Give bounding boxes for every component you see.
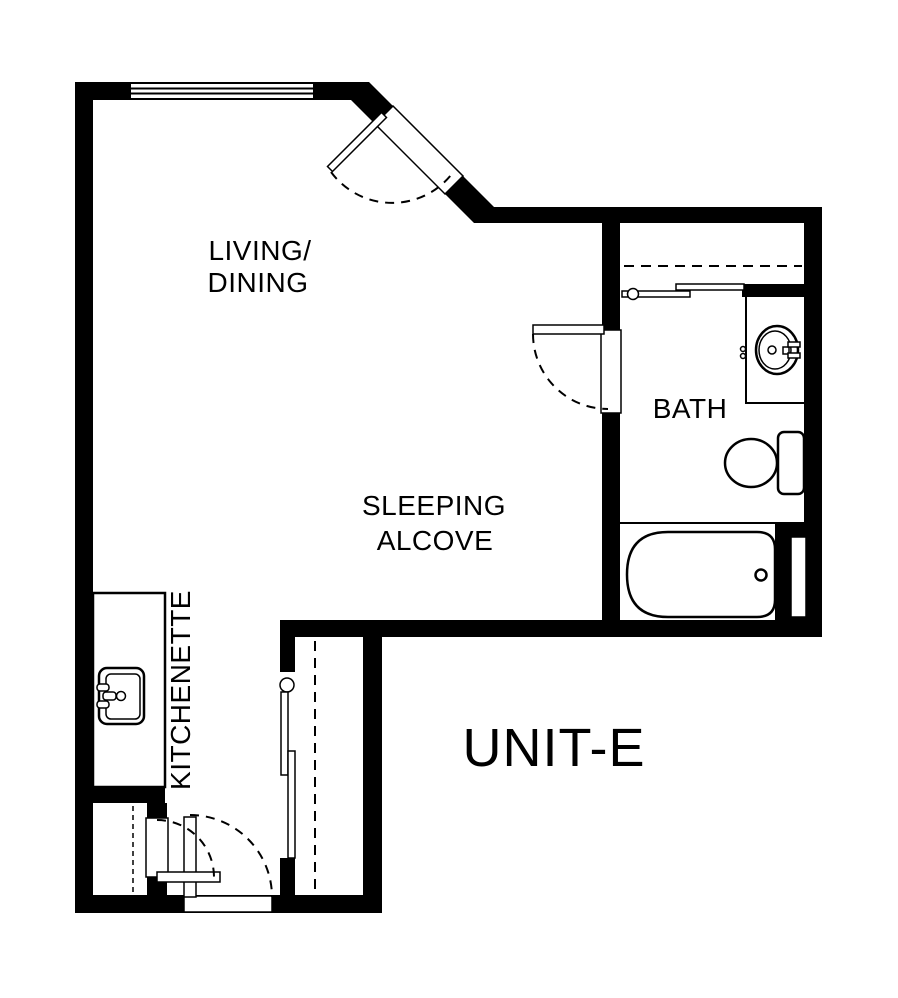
toilet — [725, 432, 804, 494]
kitchenette-area — [93, 593, 165, 787]
faucet-handle — [97, 684, 109, 691]
toilet-tank — [778, 432, 804, 494]
toilet-bowl — [725, 439, 777, 487]
wardrobe-right-wall — [363, 637, 382, 913]
tub-drain — [756, 570, 767, 581]
top-wall-left — [75, 82, 130, 100]
living-dining-label-line2: DINING — [208, 267, 309, 298]
utility-closet-doorway — [146, 818, 168, 877]
wardrobe-slider-front — [281, 692, 288, 775]
bathtub — [620, 523, 775, 617]
rear-doorway — [184, 896, 272, 912]
tub-basin — [627, 532, 775, 617]
wall-slot — [791, 537, 806, 617]
sleeping-alcove-label-line2: ALCOVE — [377, 525, 494, 556]
bath-left-wall-lower — [602, 413, 620, 637]
living-dining-label-line1: LIVING/ — [208, 235, 311, 266]
bath-door-leaf — [533, 325, 604, 334]
bath-closet-slider-back — [676, 284, 744, 290]
kitchenette-label: KITCHENETTE — [165, 590, 196, 790]
bath-label: BATH — [653, 393, 728, 424]
paper-holder-icon — [741, 354, 746, 359]
paper-holder-icon — [741, 347, 746, 352]
faucet-spout — [103, 692, 116, 700]
entry-door — [328, 106, 464, 203]
utility-closet-door-leaf — [157, 872, 220, 882]
wardrobe-left-stub-top — [280, 637, 295, 672]
alcove-bath-bottom-wall — [280, 620, 822, 637]
wardrobe-door-pull — [280, 678, 294, 692]
bath-left-wall-upper — [602, 207, 620, 337]
bath-door-swing-arc — [533, 334, 608, 409]
bath-closet-stub — [742, 284, 804, 297]
unit-title: UNIT-E — [462, 718, 645, 778]
entry-doorway — [375, 106, 463, 194]
rear-door-leaf — [184, 817, 196, 897]
faucet-handle — [788, 342, 800, 347]
floor-plan-svg: LIVING/ DINING SLEEPING ALCOVE BATH KITC… — [0, 0, 898, 998]
faucet-handle — [788, 353, 800, 358]
rear-door-swing-arc — [190, 815, 272, 897]
top-diagonal-wall — [314, 82, 822, 223]
sleeping-alcove-label-line1: SLEEPING — [362, 490, 506, 521]
floor-plan-page: LIVING/ DINING SLEEPING ALCOVE BATH KITC… — [0, 0, 898, 998]
faucet-handle — [97, 701, 109, 708]
wardrobe-closet — [280, 641, 315, 891]
entry-door-leaf — [328, 113, 387, 172]
bath-door — [533, 325, 621, 413]
window — [130, 83, 314, 99]
wardrobe-left-stub-bottom — [280, 858, 295, 895]
sink-drain — [768, 346, 776, 354]
vanity-sink — [756, 326, 800, 374]
sink-drain — [117, 692, 126, 701]
kitchen-sink — [97, 668, 144, 724]
wardrobe-slider-back — [288, 751, 295, 858]
bath-doorway — [601, 330, 621, 413]
bath-closet-door-pull — [628, 289, 639, 300]
labels: LIVING/ DINING SLEEPING ALCOVE BATH KITC… — [165, 235, 727, 790]
